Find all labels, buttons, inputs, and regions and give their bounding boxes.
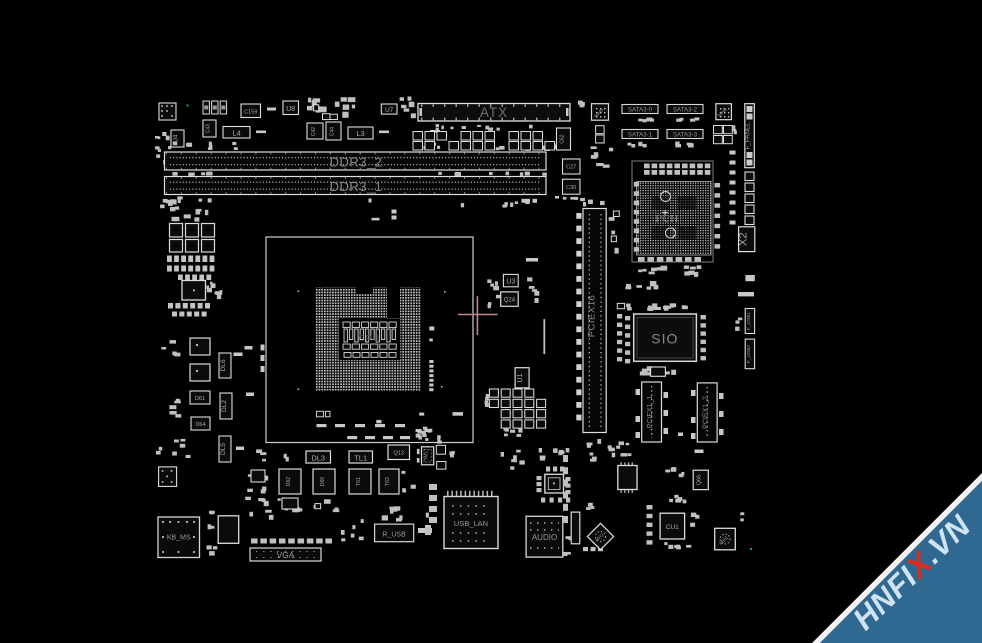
svg-text:C42: C42 bbox=[311, 127, 317, 136]
svg-text:C27: C27 bbox=[566, 165, 576, 171]
svg-text:TM1: TM1 bbox=[424, 451, 429, 460]
svg-text:T63: T63 bbox=[385, 477, 391, 486]
svg-text:C30: C30 bbox=[566, 185, 576, 191]
svg-text:L4: L4 bbox=[232, 129, 240, 138]
svg-text:DL5: DL5 bbox=[220, 443, 227, 455]
svg-text:DL2: DL2 bbox=[221, 400, 228, 412]
svg-text:T61: T61 bbox=[356, 477, 362, 486]
svg-text:U1: U1 bbox=[517, 373, 524, 382]
svg-text:U8: U8 bbox=[286, 106, 295, 113]
svg-text:U4: U4 bbox=[174, 134, 180, 142]
svg-text:L3: L3 bbox=[356, 129, 364, 138]
svg-text:F_USB2: F_USB2 bbox=[746, 345, 752, 363]
svg-text:U3: U3 bbox=[506, 279, 515, 286]
svg-text:Q66: Q66 bbox=[697, 475, 703, 485]
svg-text:D61: D61 bbox=[195, 396, 205, 402]
svg-text:AUDIO: AUDIO bbox=[532, 533, 557, 542]
svg-text:D64: D64 bbox=[195, 422, 205, 428]
svg-text:SATA3-3: SATA3-3 bbox=[673, 132, 698, 139]
svg-text:PCIEX1_1: PCIEX1_1 bbox=[647, 396, 654, 429]
svg-text:X2: X2 bbox=[738, 232, 750, 245]
svg-text:DDR3_1: DDR3_1 bbox=[330, 179, 383, 194]
svg-text:F_PANEL: F_PANEL bbox=[745, 122, 752, 150]
svg-text:DDR3_2: DDR3_2 bbox=[330, 155, 383, 170]
svg-text:KB_MS: KB_MS bbox=[167, 535, 191, 542]
svg-text:PCH: PCH bbox=[656, 214, 679, 225]
svg-text:F_USB1: F_USB1 bbox=[746, 312, 752, 330]
svg-text:C44: C44 bbox=[330, 127, 336, 136]
svg-text:TL1: TL1 bbox=[354, 454, 367, 463]
svg-text:Q24: Q24 bbox=[504, 298, 516, 304]
svg-text:ATX: ATX bbox=[480, 105, 508, 120]
svg-text:Q13: Q13 bbox=[393, 451, 403, 457]
svg-text:DL3: DL3 bbox=[311, 454, 325, 463]
svg-text:D66: D66 bbox=[320, 477, 326, 486]
svg-text:SATA3-0: SATA3-0 bbox=[628, 107, 653, 114]
svg-text:PCIEX16: PCIEX16 bbox=[587, 295, 598, 338]
svg-text:C43: C43 bbox=[206, 124, 212, 133]
svg-text:SATA3-2: SATA3-2 bbox=[673, 107, 698, 114]
svg-text:C159: C159 bbox=[244, 110, 257, 116]
svg-text:USB_LAN: USB_LAN bbox=[454, 519, 488, 528]
svg-text:R_USB: R_USB bbox=[382, 532, 406, 539]
svg-text:C62: C62 bbox=[560, 134, 566, 143]
svg-text:CU1: CU1 bbox=[666, 524, 679, 531]
svg-text:D62: D62 bbox=[286, 477, 292, 486]
svg-text:SATA3-1: SATA3-1 bbox=[628, 132, 653, 139]
svg-text:SIO: SIO bbox=[651, 331, 678, 347]
svg-text:DL6: DL6 bbox=[220, 359, 227, 371]
svg-text:PCIEX1_2: PCIEX1_2 bbox=[703, 396, 710, 429]
svg-text:CPU: CPU bbox=[358, 334, 380, 344]
svg-text:U7: U7 bbox=[385, 107, 394, 114]
